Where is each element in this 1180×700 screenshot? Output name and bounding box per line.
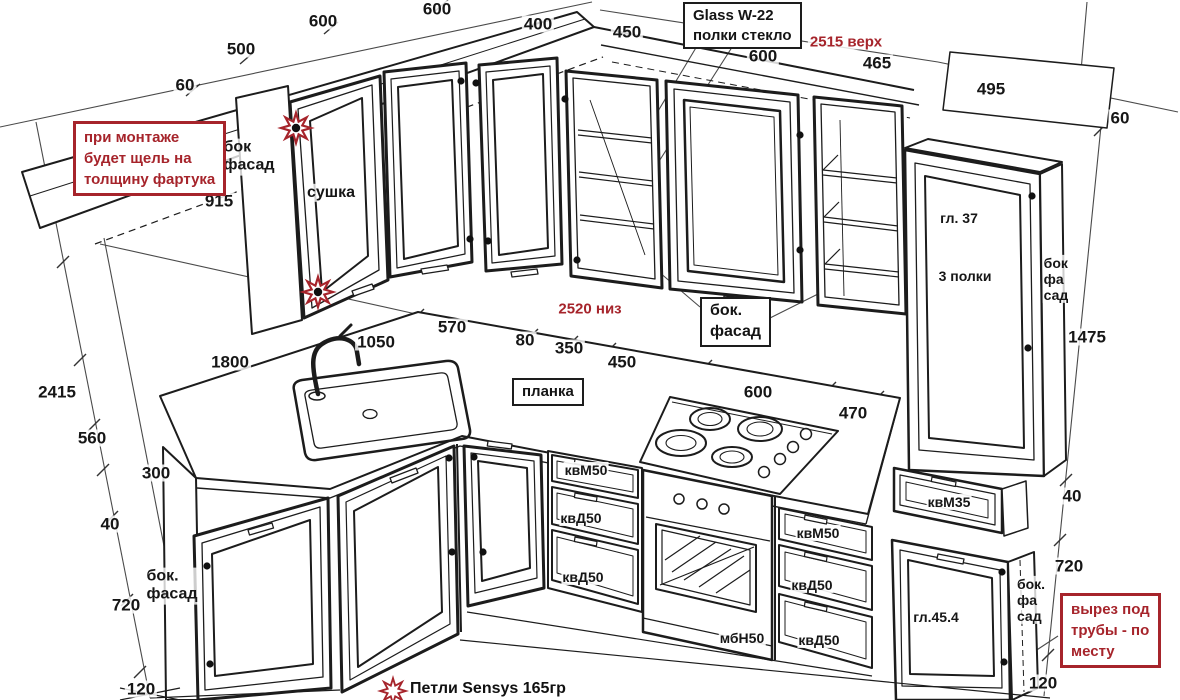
dim-top-60b: 60 bbox=[1109, 110, 1132, 127]
label-kvd50-right-2: квД50 bbox=[797, 632, 840, 648]
label-plank-box: планка bbox=[512, 378, 584, 406]
label-line: фасад bbox=[146, 586, 197, 604]
label-3-shelves: 3 полки bbox=[938, 268, 993, 284]
dim-120-left: 120 bbox=[125, 681, 157, 698]
label-side-facade-tall: бок фа сад bbox=[1043, 255, 1070, 303]
note-gap-apron: при монтаже будет щель на толщину фартук… bbox=[73, 121, 226, 196]
note-pipe-cutout: вырез под трубы - по месту bbox=[1060, 593, 1161, 668]
kitchen-drawing-page: при монтаже будет щель на толщину фартук… bbox=[0, 0, 1180, 700]
dim-1050: 1050 bbox=[355, 334, 397, 351]
label-side-facade-bottom-right: бок. фа сад bbox=[1016, 576, 1046, 624]
label-line: фасад bbox=[710, 322, 761, 343]
label-line: полки стекло bbox=[693, 26, 792, 46]
dim-2515-top: 2515 верх bbox=[808, 35, 884, 50]
dim-80: 80 bbox=[514, 332, 537, 349]
label-line: бок. bbox=[710, 301, 761, 322]
dim-470: 470 bbox=[837, 405, 869, 422]
legend-hinges: Петли Sensys 165гр bbox=[410, 680, 566, 698]
label-line: бок. bbox=[1017, 576, 1045, 592]
label-kvd50-left-1: квД50 bbox=[559, 510, 602, 526]
dim-350: 350 bbox=[553, 340, 585, 357]
dim-560: 560 bbox=[76, 430, 108, 447]
label-gl454: гл.45.4 bbox=[912, 609, 960, 625]
dim-40-left: 40 bbox=[99, 516, 122, 533]
dim-top-600b: 600 bbox=[421, 1, 453, 18]
dim-top-495: 495 bbox=[975, 81, 1007, 98]
label-kvm50-right: квМ50 bbox=[796, 525, 841, 541]
label-line: фа bbox=[1017, 592, 1045, 608]
label-glass-shelves: Glass W-22 полки стекло bbox=[683, 2, 802, 49]
label-kvd50-right-1: квД50 bbox=[790, 577, 833, 593]
dim-top-400: 400 bbox=[522, 16, 554, 33]
dim-720-right: 720 bbox=[1053, 558, 1085, 575]
dim-720-left: 720 bbox=[110, 597, 142, 614]
dim-570: 570 bbox=[436, 319, 468, 336]
note-line: месту bbox=[1071, 641, 1150, 662]
dim-120-right: 120 bbox=[1027, 675, 1059, 692]
note-line: будет щель на bbox=[84, 148, 215, 169]
label-depth-37: гл. 37 bbox=[939, 210, 979, 226]
dim-600-counter: 600 bbox=[742, 384, 774, 401]
label-side-facade-bottom-left: бок. фасад bbox=[145, 568, 198, 605]
label-line: фасад bbox=[223, 157, 274, 175]
label-kvm35: квМ35 bbox=[927, 494, 972, 510]
label-line: бок bbox=[1044, 255, 1069, 271]
note-line: толщину фартука bbox=[84, 169, 215, 190]
note-line: вырез под bbox=[1071, 599, 1150, 620]
dim-top-600c: 600 bbox=[747, 48, 779, 65]
dim-1475: 1475 bbox=[1066, 329, 1108, 346]
label-line: бок. bbox=[146, 568, 197, 586]
dim-40-right: 40 bbox=[1061, 488, 1084, 505]
label-side-facade-top: бок фасад bbox=[222, 139, 275, 176]
label-line: бок bbox=[223, 139, 274, 157]
label-line: фа bbox=[1044, 271, 1069, 287]
dim-top-465: 465 bbox=[861, 55, 893, 72]
dim-top-500: 500 bbox=[225, 41, 257, 58]
label-mbn50: мбН50 bbox=[719, 630, 766, 646]
dim-top-450: 450 bbox=[611, 24, 643, 41]
label-dryer: сушка bbox=[306, 184, 356, 202]
dim-top-60a: 60 bbox=[174, 77, 197, 94]
label-line: планка bbox=[522, 382, 574, 402]
dim-450-counter: 450 bbox=[606, 354, 638, 371]
dim-2415: 2415 bbox=[36, 384, 78, 401]
label-line: Glass W-22 bbox=[693, 6, 792, 26]
dim-300: 300 bbox=[140, 465, 172, 482]
dim-2520-bottom: 2520 низ bbox=[556, 302, 623, 317]
label-line: сад bbox=[1044, 287, 1069, 303]
label-side-facade-box: бок. фасад bbox=[700, 297, 771, 347]
dim-top-600a: 600 bbox=[307, 13, 339, 30]
note-line: трубы - по bbox=[1071, 620, 1150, 641]
note-line: при монтаже bbox=[84, 127, 215, 148]
dim-1800: 1800 bbox=[209, 354, 251, 371]
label-kvm50-left: квМ50 bbox=[564, 462, 609, 478]
label-line: сад bbox=[1017, 608, 1045, 624]
label-kvd50-left-2: квД50 bbox=[561, 569, 604, 585]
